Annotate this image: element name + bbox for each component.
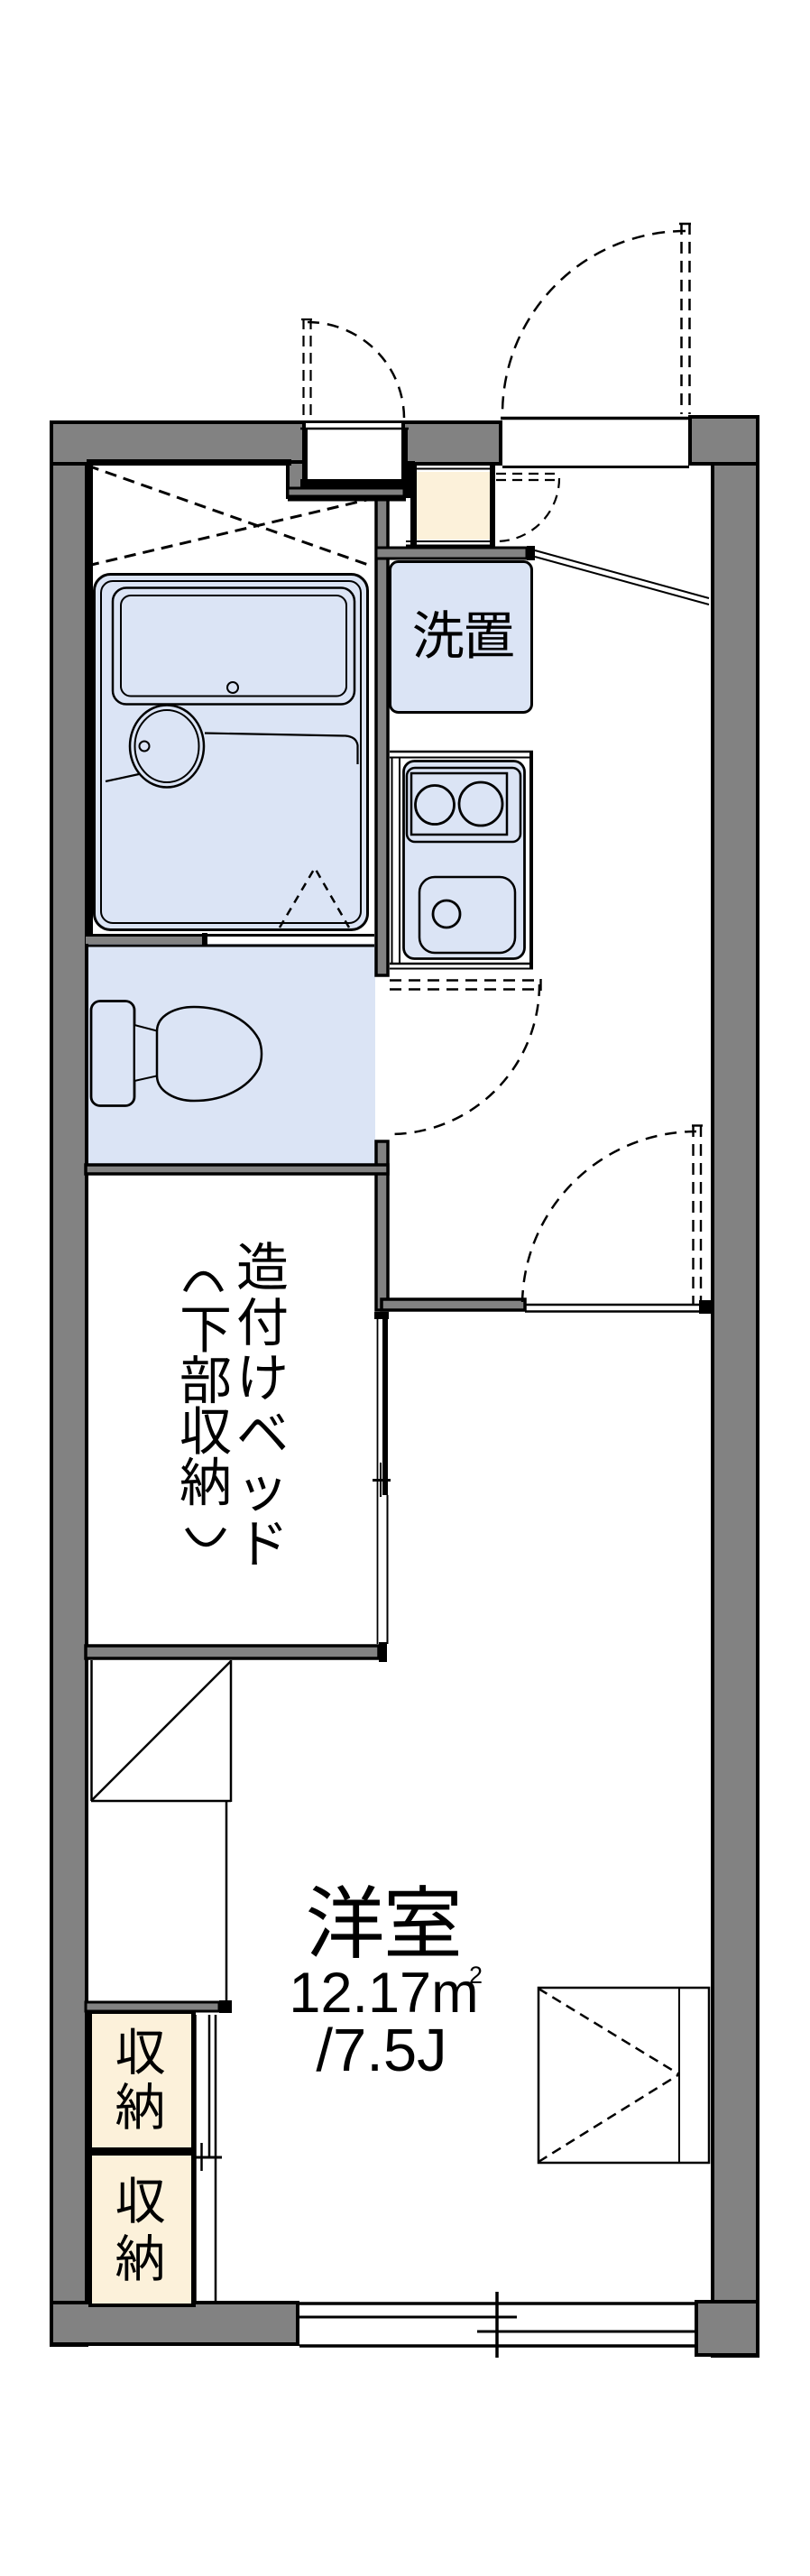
svg-text:2: 2 (469, 1962, 483, 1989)
svg-text:/7.5J: /7.5J (316, 2017, 446, 2084)
svg-text:12.17m: 12.17m (289, 1962, 478, 2025)
